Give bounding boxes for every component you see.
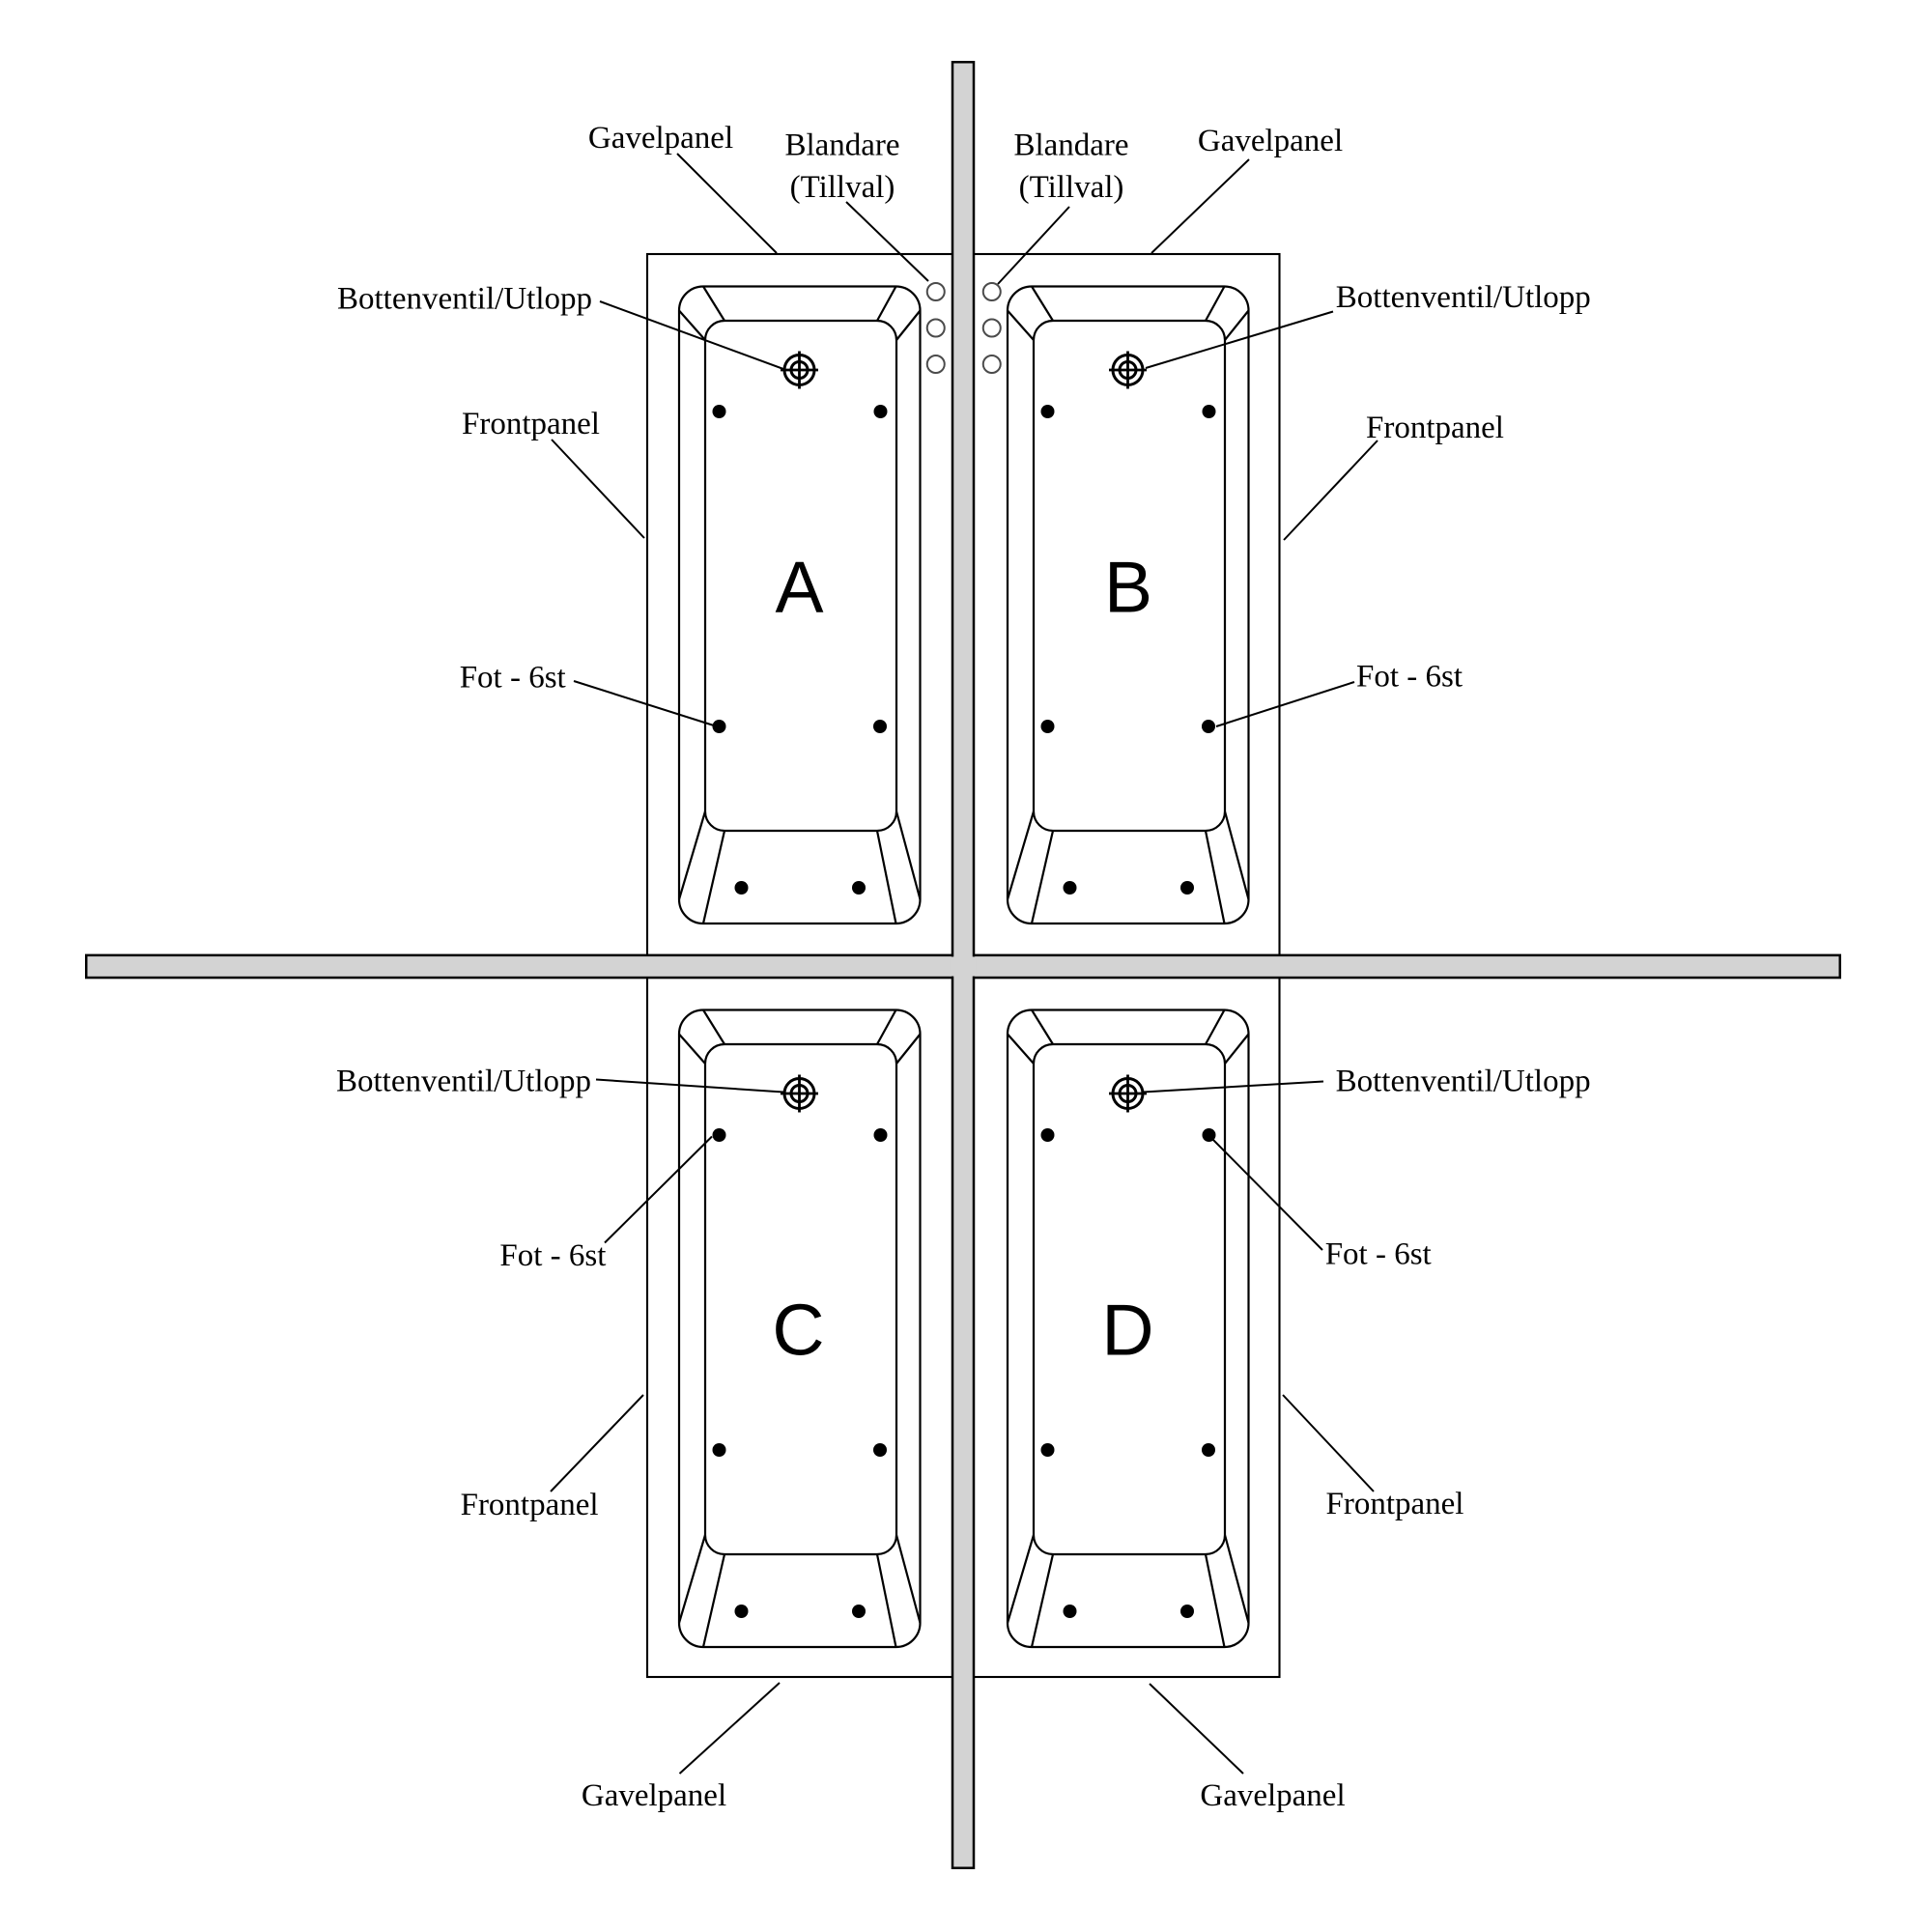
svg-text:A: A [775,547,823,628]
svg-text:Blandare: Blandare [1013,128,1128,163]
svg-text:(Tillval): (Tillval) [1019,170,1124,205]
svg-text:B: B [1104,547,1152,628]
svg-text:Fot - 6st: Fot - 6st [1325,1236,1432,1271]
svg-text:Gavelpanel: Gavelpanel [1200,1778,1345,1813]
svg-text:Fot - 6st: Fot - 6st [499,1238,606,1273]
svg-text:Frontpanel: Frontpanel [1366,411,1504,445]
svg-text:Bottenventil/Utlopp: Bottenventil/Utlopp [337,282,592,317]
svg-text:Frontpanel: Frontpanel [462,407,600,441]
svg-text:Gavelpanel: Gavelpanel [588,121,733,156]
svg-text:Bottenventil/Utlopp: Bottenventil/Utlopp [336,1065,591,1099]
svg-text:Frontpanel: Frontpanel [1326,1487,1464,1521]
svg-text:Bottenventil/Utlopp: Bottenventil/Utlopp [1336,1065,1591,1099]
svg-text:Fot - 6st: Fot - 6st [1356,660,1463,695]
svg-text:Frontpanel: Frontpanel [461,1488,599,1522]
svg-text:D: D [1101,1290,1153,1371]
svg-text:Blandare: Blandare [784,128,899,163]
svg-text:Gavelpanel: Gavelpanel [582,1778,726,1813]
svg-text:(Tillval): (Tillval) [790,170,895,205]
svg-text:Gavelpanel: Gavelpanel [1198,124,1343,158]
svg-text:Fot - 6st: Fot - 6st [460,660,566,695]
svg-text:Bottenventil/Utlopp: Bottenventil/Utlopp [1336,280,1591,315]
svg-text:C: C [772,1290,824,1371]
